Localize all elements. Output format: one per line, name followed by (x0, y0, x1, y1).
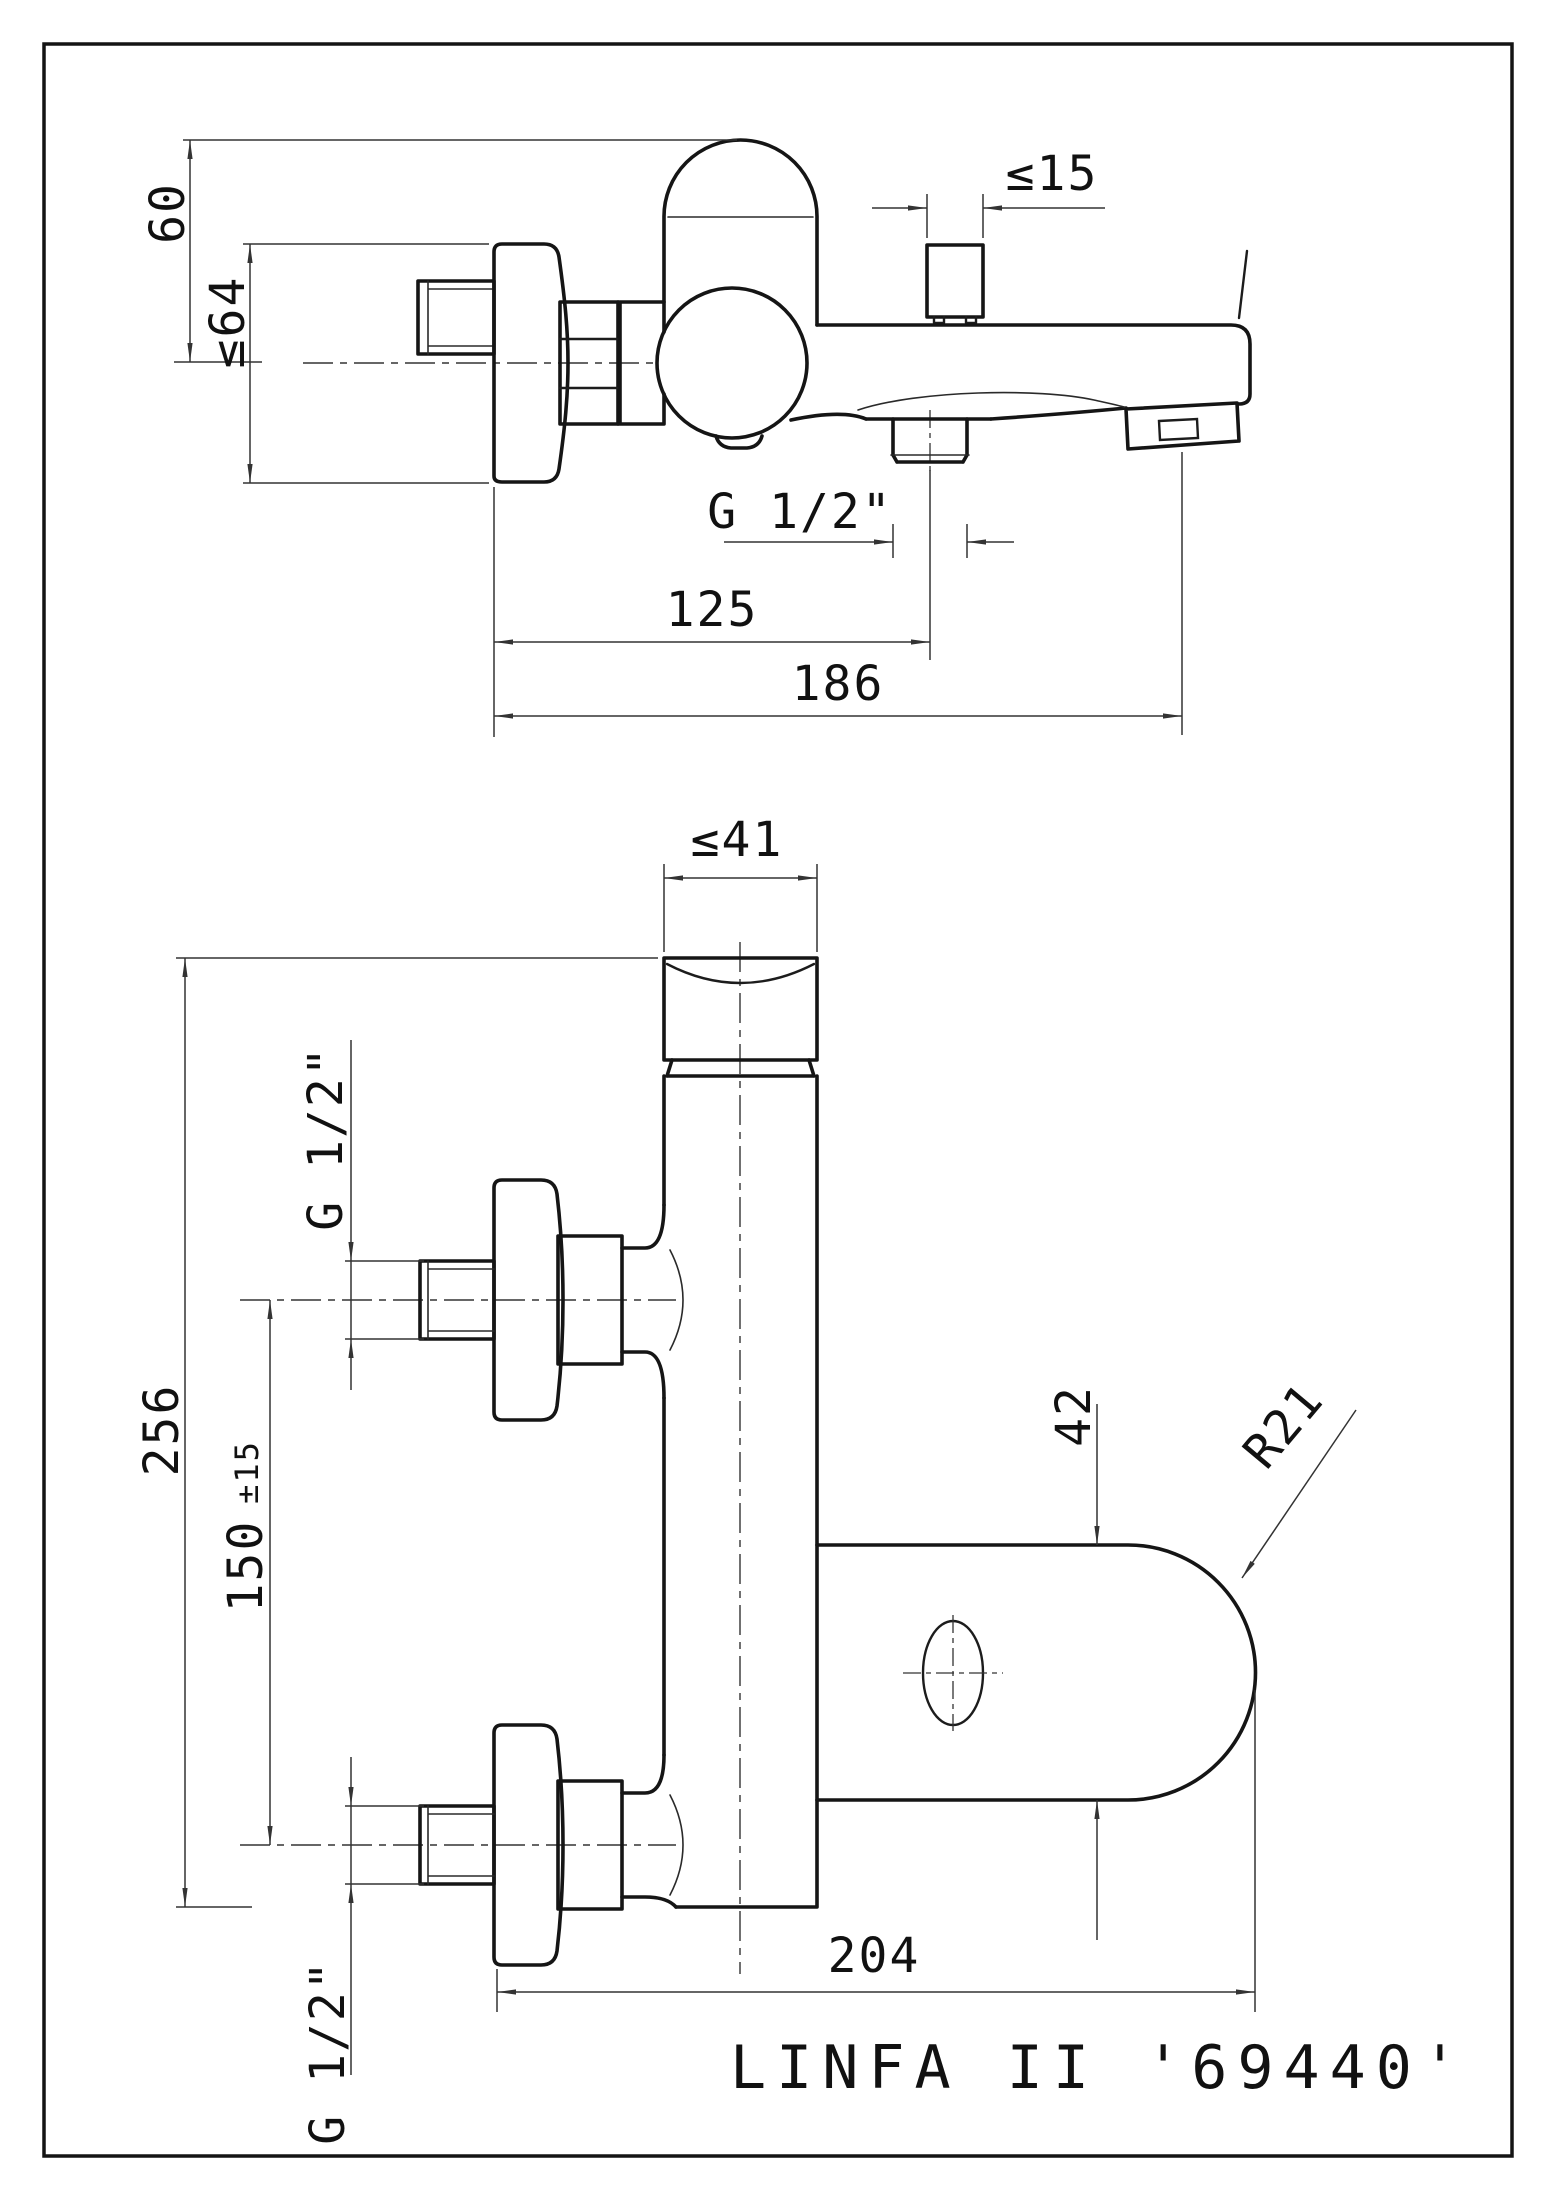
dim-thread-lower-label: G 1/2" (300, 1959, 356, 2144)
dim-150-label: 150 (218, 1520, 274, 1613)
dim-204-label: 204 (828, 1928, 921, 1984)
dim-150-tolerance: ±15 (228, 1440, 266, 1504)
dim-125-label: 125 (666, 582, 759, 638)
dim-42-label: 42 (1046, 1385, 1102, 1447)
dim-186-label: 186 (792, 656, 885, 712)
dim-dia41-label: ≤41 (691, 812, 784, 868)
technical-drawing-sheet: 60 ≤64 ≤15 G 1/2" 125 186 (0, 0, 1556, 2200)
dim-thread-upper-label: G 1/2" (298, 1045, 354, 1230)
title-model-number: LINFA II '69440' (730, 2033, 1468, 2103)
drawing-frame (44, 44, 1512, 2156)
dim-dia15-label: ≤15 (1006, 146, 1099, 202)
dim-60-label: 60 (140, 182, 196, 244)
dim-dia64-label: ≤64 (200, 276, 256, 369)
dim-256-label: 256 (134, 1384, 190, 1477)
dim-outlet-thread-label: G 1/2" (707, 484, 892, 540)
